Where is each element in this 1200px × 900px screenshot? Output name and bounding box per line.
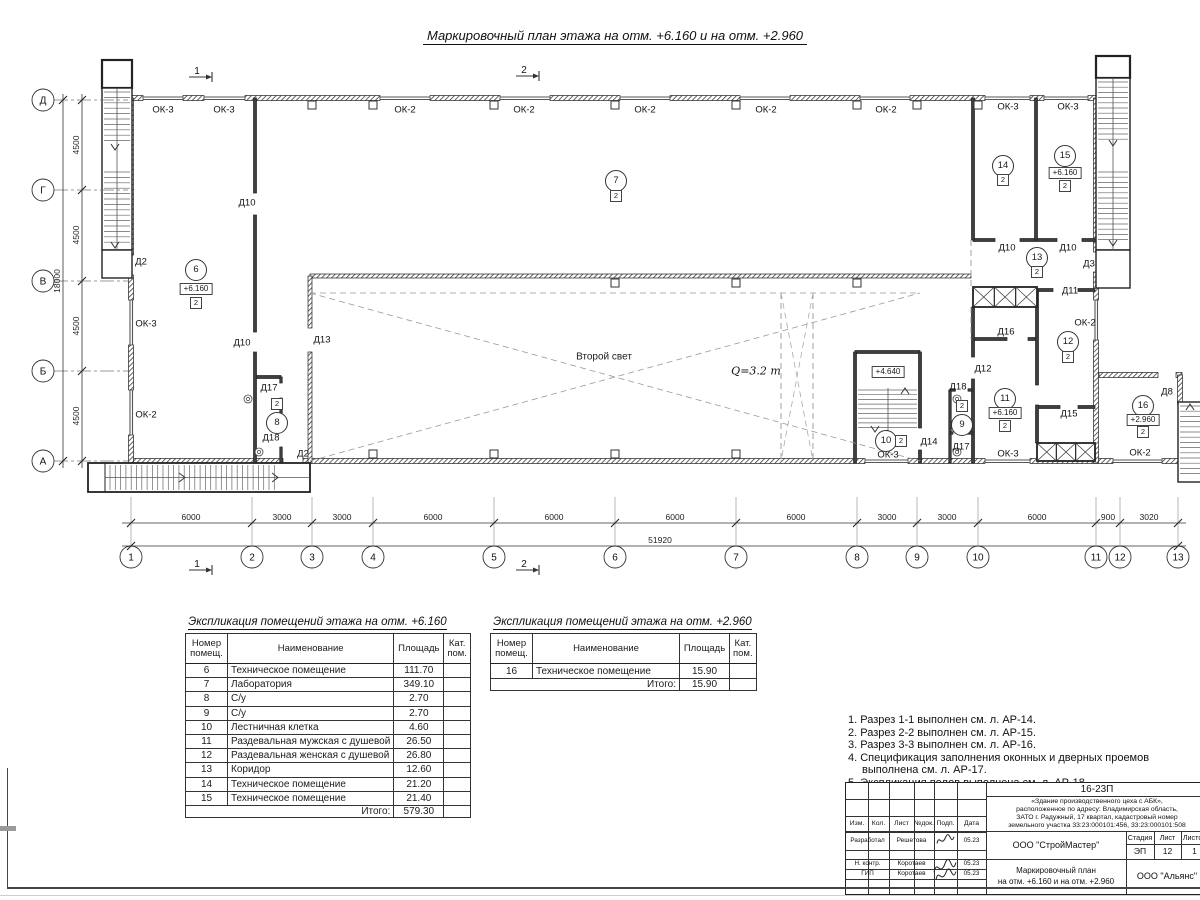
table-cell: 12 (186, 749, 228, 763)
table-row: 12Раздевальная женская с душевой26.80 (186, 749, 471, 763)
titleblock-org1: ООО "СтройМастер" (986, 831, 1126, 859)
axis-label: 2 (249, 553, 255, 564)
wall (790, 96, 860, 101)
stair-box (102, 250, 132, 278)
rooms-table-6160: Номер помещ.НаименованиеПлощадьКат. пом.… (185, 633, 471, 818)
table-cell: 21.20 (394, 777, 444, 791)
table-cell: 21.40 (394, 791, 444, 805)
total-label: Итого: (491, 679, 680, 691)
column-marker (369, 450, 377, 458)
table-row: 16Техническое помещение15.90 (491, 664, 757, 679)
titleblock-role: Н. контр. (846, 859, 889, 869)
axis-label: 11 (1091, 553, 1102, 564)
column-marker (611, 101, 619, 109)
titleblock-header-cell: №док. (914, 816, 934, 831)
wall (972, 98, 975, 240)
wall (129, 275, 134, 300)
table-header: Кат. пом. (444, 634, 471, 664)
titleblock-sheet-label: Лист (1154, 831, 1181, 844)
stair-box (1096, 250, 1130, 288)
column-marker (732, 279, 740, 287)
column-marker (611, 450, 619, 458)
table-header: Наименование (533, 634, 680, 664)
table-cell: 349.10 (394, 678, 444, 692)
stair-box (102, 60, 132, 88)
table-row: 10Лестничная клетка4.60 (186, 720, 471, 734)
wall (430, 96, 500, 101)
axis-label: Г (40, 186, 46, 197)
table-cell: Техническое помещение (228, 791, 394, 805)
table-cell: Техническое помещение (228, 664, 394, 678)
sheet-frame-bottom (7, 887, 1200, 889)
sheet-edge-mark (0, 826, 16, 831)
table-row: 7Лаборатория349.10 (186, 678, 471, 692)
section-mark-arrow (533, 74, 539, 79)
table-cell: 14 (186, 777, 228, 791)
axis-label: А (40, 457, 47, 468)
wall (855, 351, 920, 354)
table-cell: Раздевальная женская с душевой (228, 749, 394, 763)
titleblock-org2: ООО "Альянс" (1126, 859, 1200, 894)
axis-label: 5 (491, 553, 497, 564)
note-item: 4. Спецификация заполнения оконных и две… (848, 752, 1178, 777)
rooms-table-2960: Номер помещ.НаименованиеПлощадьКат. пом.… (490, 633, 757, 691)
wall (1078, 406, 1095, 409)
wall (245, 96, 380, 101)
table1-title: Экспликация помещений этажа на отм. +6.1… (185, 616, 450, 628)
table-cell: 2.70 (394, 706, 444, 720)
note-item: 3. Разрез 3-3 выполнен см. л. АР-16. (848, 739, 1178, 752)
stair-box (1178, 402, 1200, 482)
wall (255, 376, 281, 379)
titleblock-line (846, 799, 986, 800)
titleblock-name: Решетова (889, 832, 934, 850)
table-cell: Раздевальная мужская с душевой (228, 734, 394, 748)
table-row: 11Раздевальная мужская с душевой26.50 (186, 734, 471, 748)
signature (934, 867, 958, 885)
wc-fixture (953, 395, 961, 403)
titleblock-date: 05.23 (957, 869, 986, 879)
table-cell: 9 (186, 706, 228, 720)
wc-fixture (953, 448, 961, 456)
wall (1020, 239, 1057, 242)
table-cell (444, 692, 471, 706)
table-cell: Техническое помещение (228, 777, 394, 791)
table-cell: Лаборатория (228, 678, 394, 692)
titleblock-name: Коротаев (889, 869, 934, 879)
table-cell: С/у (228, 692, 394, 706)
axis-label: В (40, 277, 47, 288)
section-mark-arrow (533, 568, 539, 573)
table-total-row: Итого:15.90 (491, 679, 757, 691)
column-marker (308, 101, 316, 109)
titleblock-sheets-label: Листов (1181, 831, 1200, 844)
column-marker (853, 279, 861, 287)
section-mark-arrow (206, 568, 212, 573)
titleblock-stage-value: ЭП (1126, 844, 1154, 859)
wall (972, 379, 975, 463)
wall (308, 352, 312, 463)
section-mark-label: 2 (521, 65, 527, 76)
axis-label: Д (40, 96, 47, 107)
table-header: Площадь (680, 634, 730, 664)
table-row: 6Техническое помещение111.70 (186, 664, 471, 678)
table-cell: 15 (186, 791, 228, 805)
wall (949, 390, 952, 463)
table-header: Номер помещ. (186, 634, 228, 664)
column-marker (490, 101, 498, 109)
floor-plan-drawing: ДГВБА12345678910111213 1212 (0, 0, 1200, 600)
wc-fixture (255, 448, 263, 456)
wall (183, 96, 204, 101)
titleblock-code: 16-23П (986, 783, 1200, 796)
section-mark-arrow (206, 75, 212, 80)
stair-arrow (871, 426, 879, 432)
wall (129, 345, 134, 390)
signature (935, 833, 956, 848)
table-cell: 7 (186, 678, 228, 692)
wall (1082, 239, 1095, 242)
note-item: 1. Разрез 1-1 выполнен см. л. АР-14. (848, 714, 1178, 727)
table-cell: С/у (228, 706, 394, 720)
titleblock-name: Коротаев (889, 859, 934, 869)
table-header: Площадь (394, 634, 444, 664)
column-marker (974, 101, 982, 109)
wall (280, 398, 283, 432)
total-value: 15.90 (680, 679, 730, 691)
note-item: 2. Разрез 2-2 выполнен см. л. АР-15. (848, 727, 1178, 740)
table-cell (444, 734, 471, 748)
table-cell: 4.60 (394, 720, 444, 734)
notes-list: 1. Разрез 1-1 выполнен см. л. АР-14.2. Р… (848, 714, 1178, 790)
table-cell: 2.70 (394, 692, 444, 706)
table-cell: 6 (186, 664, 228, 678)
wall (973, 239, 995, 242)
section-mark-label: 1 (194, 559, 200, 570)
table-cell: 15.90 (680, 664, 730, 679)
sheet-edge-bottom (0, 895, 1200, 896)
section-mark-label: 2 (521, 559, 527, 570)
wall (1035, 98, 1038, 240)
table-cell (444, 706, 471, 720)
section-mark-label: 1 (194, 66, 200, 77)
table-cell: 26.50 (394, 734, 444, 748)
table-cell: 26.80 (394, 749, 444, 763)
table-row: 13Коридор12.60 (186, 763, 471, 777)
title-block: Изм.Кол.Лист№док.Подп.ДатаРазработалРеше… (845, 782, 1200, 895)
axis-label: 8 (854, 553, 860, 564)
axis-label: 7 (733, 553, 739, 564)
table-cell (444, 777, 471, 791)
titleblock-header-cell: Подп. (934, 816, 957, 831)
titleblock-doc-title: Маркировочный планна отм. +6.160 и на от… (986, 861, 1126, 898)
wall (308, 276, 312, 328)
table-header: Номер помещ. (491, 634, 533, 664)
titleblock-date: 05.23 (957, 859, 986, 869)
table-cell (730, 664, 757, 679)
table-cell: 12.60 (394, 763, 444, 777)
wall (973, 338, 1007, 341)
table2-title: Экспликация помещений этажа на отм. +2.9… (490, 616, 755, 628)
titleblock-header-cell: Дата (957, 816, 986, 831)
axis-label: 9 (914, 553, 920, 564)
titleblock-sheets-value: 1 (1181, 844, 1200, 859)
titleblock-header-cell: Кол. (868, 816, 889, 831)
table-cell: 16 (491, 664, 533, 679)
wall (310, 274, 971, 278)
table-cell: Техническое помещение (533, 664, 680, 679)
wall (966, 432, 973, 435)
table-cell (444, 720, 471, 734)
titleblock-header-cell: Лист (889, 816, 914, 831)
titleblock-stage-label: Стадия (1126, 831, 1154, 844)
column-marker (490, 450, 498, 458)
table-cell: 8 (186, 692, 228, 706)
wc-fixture (244, 395, 252, 403)
titleblock-role: ГИП (846, 869, 889, 879)
column-marker (732, 101, 740, 109)
wall (280, 447, 283, 463)
floor-plan: ДГВБА12345678910111213 1212 ОК-3ОК-3ОК-2… (0, 0, 1200, 600)
total-value: 579.30 (394, 805, 444, 817)
table-total-row: Итого:579.30 (186, 805, 471, 817)
wall (254, 98, 257, 193)
table-cell (444, 664, 471, 678)
table-cell: Лестничная клетка (228, 720, 394, 734)
wall (950, 432, 953, 435)
wall (1036, 405, 1039, 443)
stair-arrow (901, 388, 909, 394)
axis-label: 3 (309, 553, 315, 564)
table-row: 8С/у2.70 (186, 692, 471, 706)
wall (950, 389, 955, 392)
wall (1178, 375, 1183, 404)
axis-label: 6 (612, 553, 618, 564)
table-cell: Коридор (228, 763, 394, 777)
drawing-sheet: Маркировочный план этажа на отм. +6.160 … (0, 0, 1200, 900)
axis-label: 10 (972, 553, 984, 564)
wall (670, 96, 740, 101)
column-marker (913, 101, 921, 109)
table-cell: 111.70 (394, 664, 444, 678)
titleblock-header-cell: Изм. (846, 816, 868, 831)
wall (254, 352, 257, 463)
column-marker (611, 279, 619, 287)
titleblock-date: 05.23 (957, 832, 986, 850)
wall (972, 307, 975, 357)
titleblock-role: Разработал (846, 832, 889, 850)
table-cell (444, 749, 471, 763)
wall (1078, 289, 1095, 292)
explication-table-2960: Номер помещ.НаименованиеПлощадьКат. пом.… (490, 633, 757, 691)
table-cell: 13 (186, 763, 228, 777)
table-row: 14Техническое помещение21.20 (186, 777, 471, 791)
wall (254, 215, 257, 332)
table-row: 9С/у2.70 (186, 706, 471, 720)
titleblock-sheet-value: 12 (1154, 844, 1181, 859)
wall (129, 435, 134, 463)
axis-label: Б (40, 367, 47, 378)
total-label: Итого: (186, 805, 394, 817)
table-cell (444, 791, 471, 805)
table-cell (444, 678, 471, 692)
table-cell (444, 763, 471, 777)
titleblock-line (846, 879, 986, 880)
column-marker (369, 101, 377, 109)
table-header: Кат. пом. (730, 634, 757, 664)
wall (968, 389, 973, 392)
axis-label: 12 (1114, 553, 1126, 564)
titleblock-line (846, 850, 986, 851)
table-cell: 11 (186, 734, 228, 748)
wall (1099, 373, 1158, 378)
titleblock-object-description: «Здание производственного цеха с АБК»,ра… (988, 797, 1200, 831)
wall (1037, 406, 1060, 409)
table-row: 15Техническое помещение21.40 (186, 791, 471, 805)
column-marker (732, 450, 740, 458)
table-cell: 10 (186, 720, 228, 734)
column-marker (853, 101, 861, 109)
table-header: Наименование (228, 634, 394, 664)
wall (303, 459, 865, 464)
wall (280, 377, 283, 383)
wall (854, 352, 857, 463)
stair-box (1096, 56, 1130, 78)
wall (1037, 289, 1053, 292)
axis-label: 4 (370, 553, 376, 564)
axis-label: 13 (1172, 553, 1184, 564)
explication-table-6160: Номер помещ.НаименованиеПлощадьКат. пом.… (185, 633, 471, 818)
wall (550, 96, 620, 101)
wall (919, 352, 922, 428)
axis-label: 1 (128, 553, 134, 564)
